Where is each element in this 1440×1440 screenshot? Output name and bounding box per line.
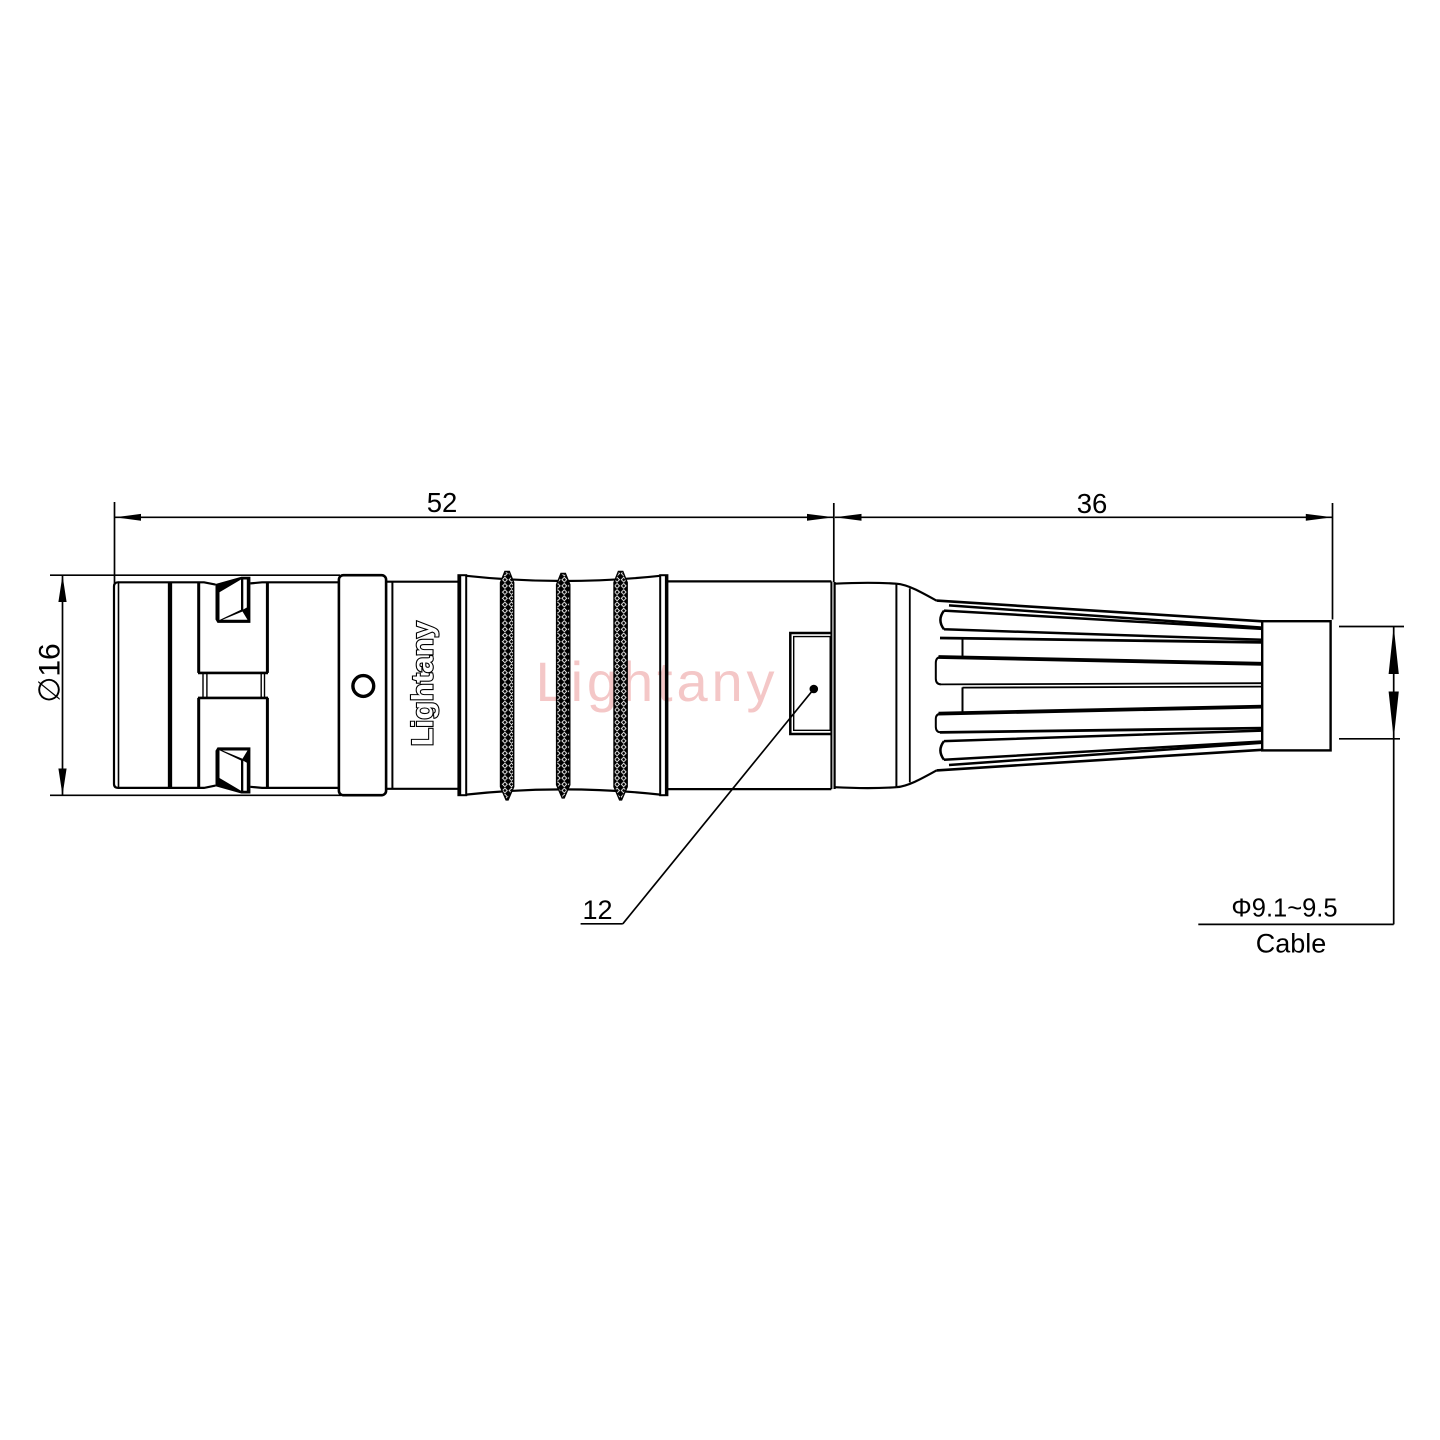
svg-text:Φ9.1~9.5: Φ9.1~9.5 (1231, 894, 1337, 922)
svg-text:∅16: ∅16 (34, 643, 67, 703)
svg-text:Cable: Cable (1256, 929, 1327, 959)
svg-text:52: 52 (427, 487, 458, 518)
svg-text:36: 36 (1077, 488, 1108, 519)
svg-text:Lightany: Lightany (536, 650, 779, 713)
svg-text:12: 12 (582, 895, 612, 925)
svg-text:Lightany: Lightany (407, 621, 440, 746)
